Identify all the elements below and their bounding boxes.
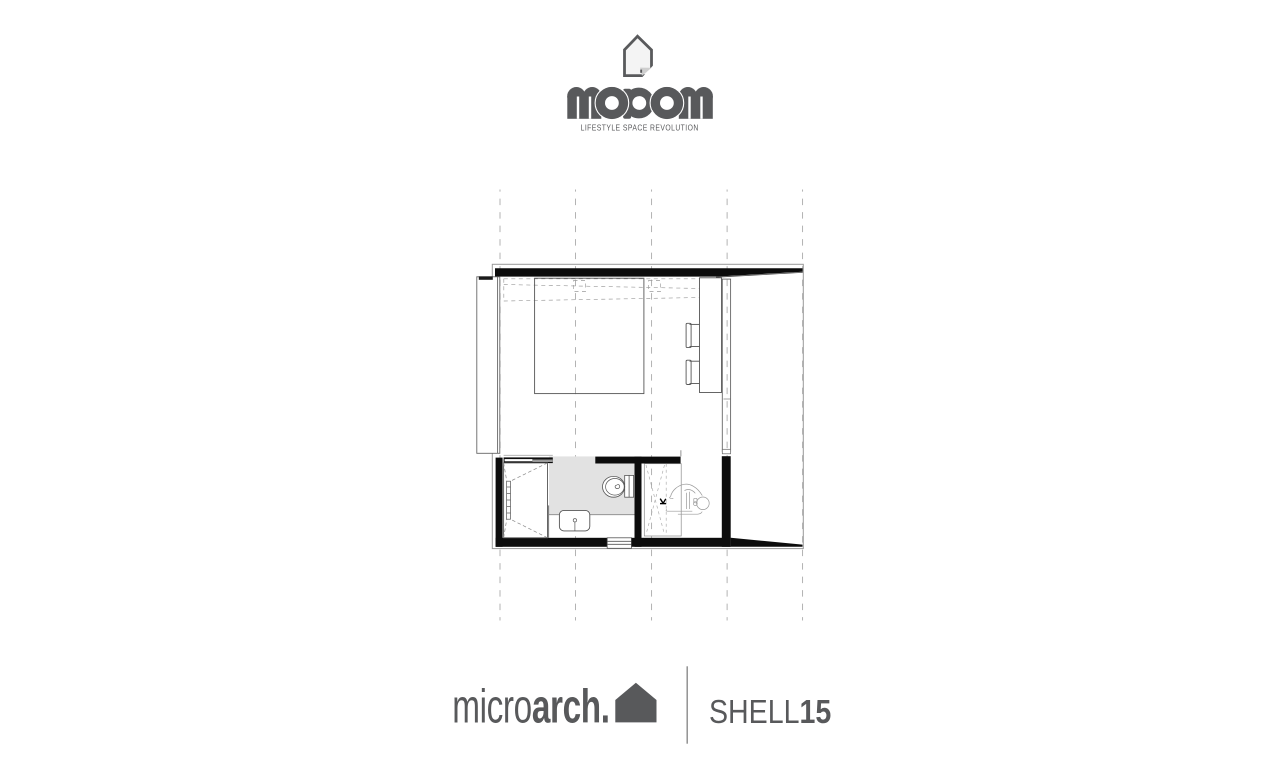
svg-text:microarch.: microarch. xyxy=(452,680,609,733)
svg-text:LIFESTYLE SPACE REVOLUTION: LIFESTYLE SPACE REVOLUTION xyxy=(581,123,699,133)
svg-text:SHELL15: SHELL15 xyxy=(709,693,831,731)
